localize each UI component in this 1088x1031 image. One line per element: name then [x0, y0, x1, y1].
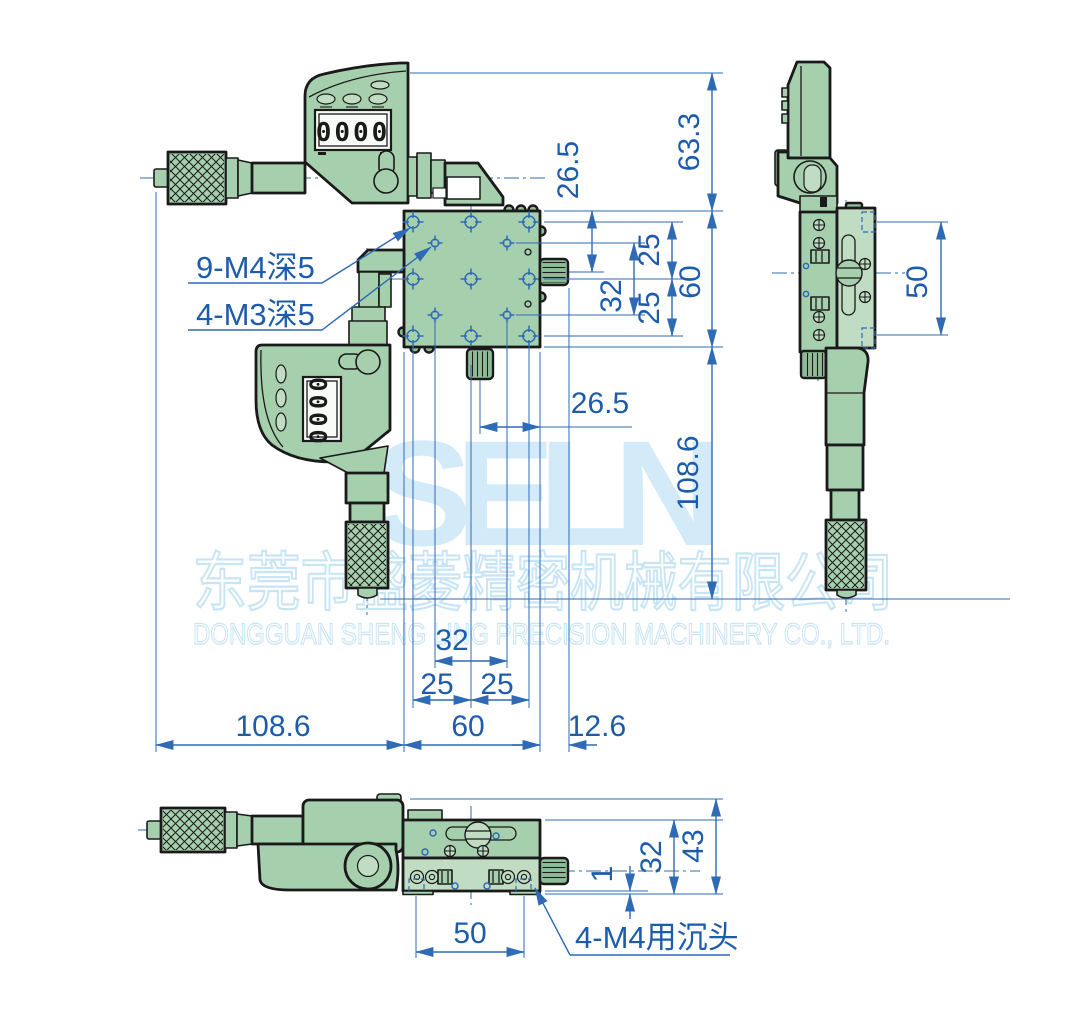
- y-mic-button: [276, 365, 286, 383]
- watermark-company-en: DONGGUAN SHENG LING PRECISION MACHINERY …: [193, 618, 890, 651]
- x-mic-spindle-nut: [417, 153, 431, 198]
- y-mic-tip: [358, 588, 377, 598]
- base-lip: [510, 891, 540, 895]
- front-x-micrometer: [147, 794, 403, 890]
- front-x-knob: [540, 858, 568, 884]
- x-mic-button: [343, 94, 361, 104]
- dim-hole-row-pitch-lower: 25: [633, 291, 666, 324]
- side-micrometer-lower: [826, 348, 868, 598]
- dim-m3-row-span: 32: [595, 279, 628, 312]
- x-mic-ring: [226, 158, 238, 198]
- watermark-company-cn: 东莞市盛菱精密机械有限公司: [193, 547, 893, 619]
- side-mic-barrel: [827, 445, 863, 490]
- y-mic-sleeve: [350, 503, 384, 522]
- y-mic-spindle: [359, 272, 379, 308]
- x-mic-display: 0000: [305, 63, 408, 203]
- y-mic-spindle-nut: [352, 307, 385, 322]
- dim-hole-col-pitch-left: 25: [420, 668, 453, 701]
- dim-hole-col-pitch-right: 25: [480, 668, 513, 701]
- x-mic-button: [371, 81, 389, 89]
- dim-front-counterbore-pitch: 50: [453, 917, 486, 950]
- y-mic-bracket-arm: [358, 250, 404, 272]
- x-axis-knob: [540, 259, 568, 285]
- dim-hole-row-pitch-upper: 25: [633, 233, 666, 266]
- dim-mic-tip-to-stage-left: 108.6: [235, 710, 310, 743]
- side-rail-left: [800, 212, 837, 352]
- dim-platform-height: 32: [635, 840, 668, 873]
- y-mic-button: [276, 413, 286, 431]
- y-mic-display: 0000: [256, 345, 390, 462]
- y-mic-lock-cam: [356, 350, 380, 374]
- x-mic-button: [369, 94, 387, 104]
- dim-base-lip: 1: [586, 866, 619, 883]
- x-mic-taper: [238, 160, 252, 196]
- base-lip: [403, 891, 433, 895]
- callout-m4-tapped-holes: 9-M4深5: [196, 250, 315, 285]
- side-rail-right: [836, 203, 875, 348]
- drawing-page: SELN 东莞市盛菱精密机械有限公司 DONGGUAN SHENG LING P…: [0, 0, 1088, 1031]
- x-mic-knurled-thimble: [168, 152, 226, 204]
- dim-m3-col-span: 32: [435, 624, 468, 657]
- dim-stage-bottom-to-mic-tip: 108.6: [672, 435, 705, 510]
- x-mic-lcd-digits: 0000: [316, 118, 391, 148]
- dim-total-height: 43: [677, 829, 710, 862]
- side-pivot-clamp: [778, 152, 837, 212]
- callout-m3-tapped-holes: 4-M3深5: [196, 297, 315, 332]
- side-mic-sleeve: [831, 490, 859, 520]
- stage-plate: [399, 206, 546, 353]
- y-mic-lcd-digits: 0000: [305, 374, 333, 444]
- x-mic-lock-cam: [374, 169, 398, 193]
- side-mic-knurled-thimble: [826, 520, 866, 590]
- dim-display-to-stage-top: 63.3: [673, 113, 706, 171]
- front-stage-base: [403, 858, 540, 895]
- dim-stage-right-to-knob-tip: 12.6: [568, 710, 626, 743]
- callout-m4-counterbore: 4-M4用沉头: [575, 920, 739, 955]
- x-mic-spindle: [408, 157, 417, 196]
- dim-stage-width: 60: [451, 710, 484, 743]
- y-mic-knurled-thimble: [346, 522, 388, 588]
- dim-stage-height: 60: [674, 265, 707, 298]
- y-mic-button: [276, 389, 286, 407]
- front-mic-knurled-thimble: [161, 808, 225, 852]
- x-mic-barrel: [252, 163, 305, 193]
- right-side-view: [772, 62, 905, 612]
- side-y-knob: [801, 351, 826, 378]
- y-mic-spindle-end: [349, 321, 387, 346]
- side-mic-tip: [837, 590, 856, 598]
- x-micrometer: 0000: [154, 63, 503, 205]
- front-view: [138, 794, 700, 905]
- dim-stage-top-to-x-knob-center: 26.5: [552, 141, 585, 199]
- x-mic-button: [317, 94, 335, 104]
- y-mic-barrel: [346, 473, 388, 503]
- dim-side-counterbore-pitch: 50: [901, 265, 934, 298]
- front-mic-barrel: [252, 816, 303, 844]
- dim-y-knob-center-to-stage-right: 26.5: [571, 387, 629, 420]
